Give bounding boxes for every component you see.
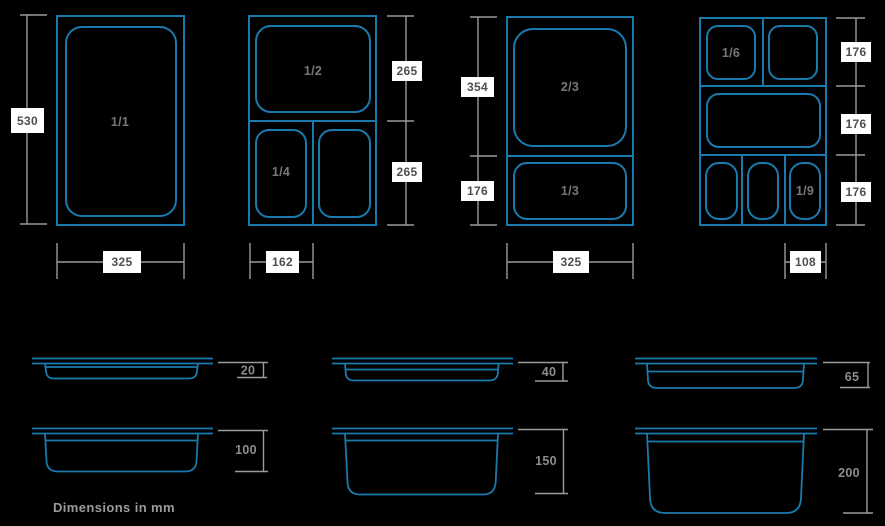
side-view-depth-100: 100 <box>32 429 268 472</box>
depth-dimension-value: 65 <box>845 370 860 384</box>
pan-rim-lines <box>635 429 817 434</box>
diagram-canvas: 1/1 530 325 1/2 1/4 265 265 162 2/3 1/3 <box>0 0 885 526</box>
height-dimension-value: 530 <box>17 114 38 128</box>
top-view-group-1: 1/1 530 325 <box>11 15 184 279</box>
side-view-depth-200: 200 <box>635 429 873 514</box>
fraction-label: 1/3 <box>561 184 579 198</box>
fraction-label: 1/9 <box>796 184 814 198</box>
units-footnote: Dimensions in mm <box>53 500 175 515</box>
pan-inner-outline <box>707 94 820 147</box>
depth-dimension-value: 20 <box>241 364 256 378</box>
depth-dimension-value: 100 <box>235 443 257 457</box>
depth-dimension-value: 40 <box>542 365 557 379</box>
pan-body-outline <box>647 364 804 389</box>
pan-rim-lines <box>332 359 513 364</box>
width-dimension-value: 108 <box>795 255 816 269</box>
depth-dimension-value: 200 <box>838 466 860 480</box>
pan-rim-lines <box>32 359 213 364</box>
pan-dividers <box>249 121 376 225</box>
fraction-label: 2/3 <box>561 80 579 94</box>
segment-dimension-value: 176 <box>846 117 867 131</box>
height-dimension-line <box>387 16 414 225</box>
pan-body-outline <box>45 364 198 379</box>
width-dimension-value: 325 <box>112 255 133 269</box>
segment-dimension-value: 265 <box>397 64 418 78</box>
pan-body-outline <box>345 364 499 381</box>
fraction-label: 1/6 <box>722 46 740 60</box>
depth-dimension-value: 150 <box>535 454 557 468</box>
top-view-group-4: 1/6 1/9 176 176 176 108 <box>700 18 871 279</box>
segment-dimension-value: 176 <box>846 185 867 199</box>
fraction-label: 1/4 <box>272 165 290 179</box>
width-dimension-value: 162 <box>272 255 293 269</box>
pan-body-outline <box>647 434 804 514</box>
width-dimension-value: 325 <box>561 255 582 269</box>
segment-dimension-value: 265 <box>397 165 418 179</box>
side-view-depth-65: 65 <box>635 359 870 389</box>
segment-dimension-value: 176 <box>467 184 488 198</box>
pan-inner-outline <box>706 163 737 219</box>
pan-rim-lines <box>32 429 213 434</box>
pan-inner-outline <box>769 26 817 79</box>
pan-rim-lines <box>332 429 513 434</box>
top-view-group-2: 1/2 1/4 265 265 162 <box>249 16 422 279</box>
pan-inner-outline <box>748 163 778 219</box>
segment-dimension-value: 176 <box>846 45 867 59</box>
fraction-label: 1/2 <box>304 64 322 78</box>
side-view-depth-150: 150 <box>332 429 568 495</box>
top-view-group-3: 2/3 1/3 354 176 325 <box>461 17 633 279</box>
pan-body-outline <box>45 434 198 472</box>
fraction-label: 1/1 <box>111 115 129 129</box>
pan-rim-lines <box>635 359 817 364</box>
side-view-depth-40: 40 <box>332 359 568 382</box>
pan-inner-outline <box>319 130 370 217</box>
gastronorm-sizes-diagram: 1/1 530 325 1/2 1/4 265 265 162 2/3 1/3 <box>0 0 885 526</box>
side-view-depth-20: 20 <box>32 359 268 379</box>
pan-body-outline <box>345 434 498 495</box>
segment-dimension-value: 354 <box>467 80 488 94</box>
